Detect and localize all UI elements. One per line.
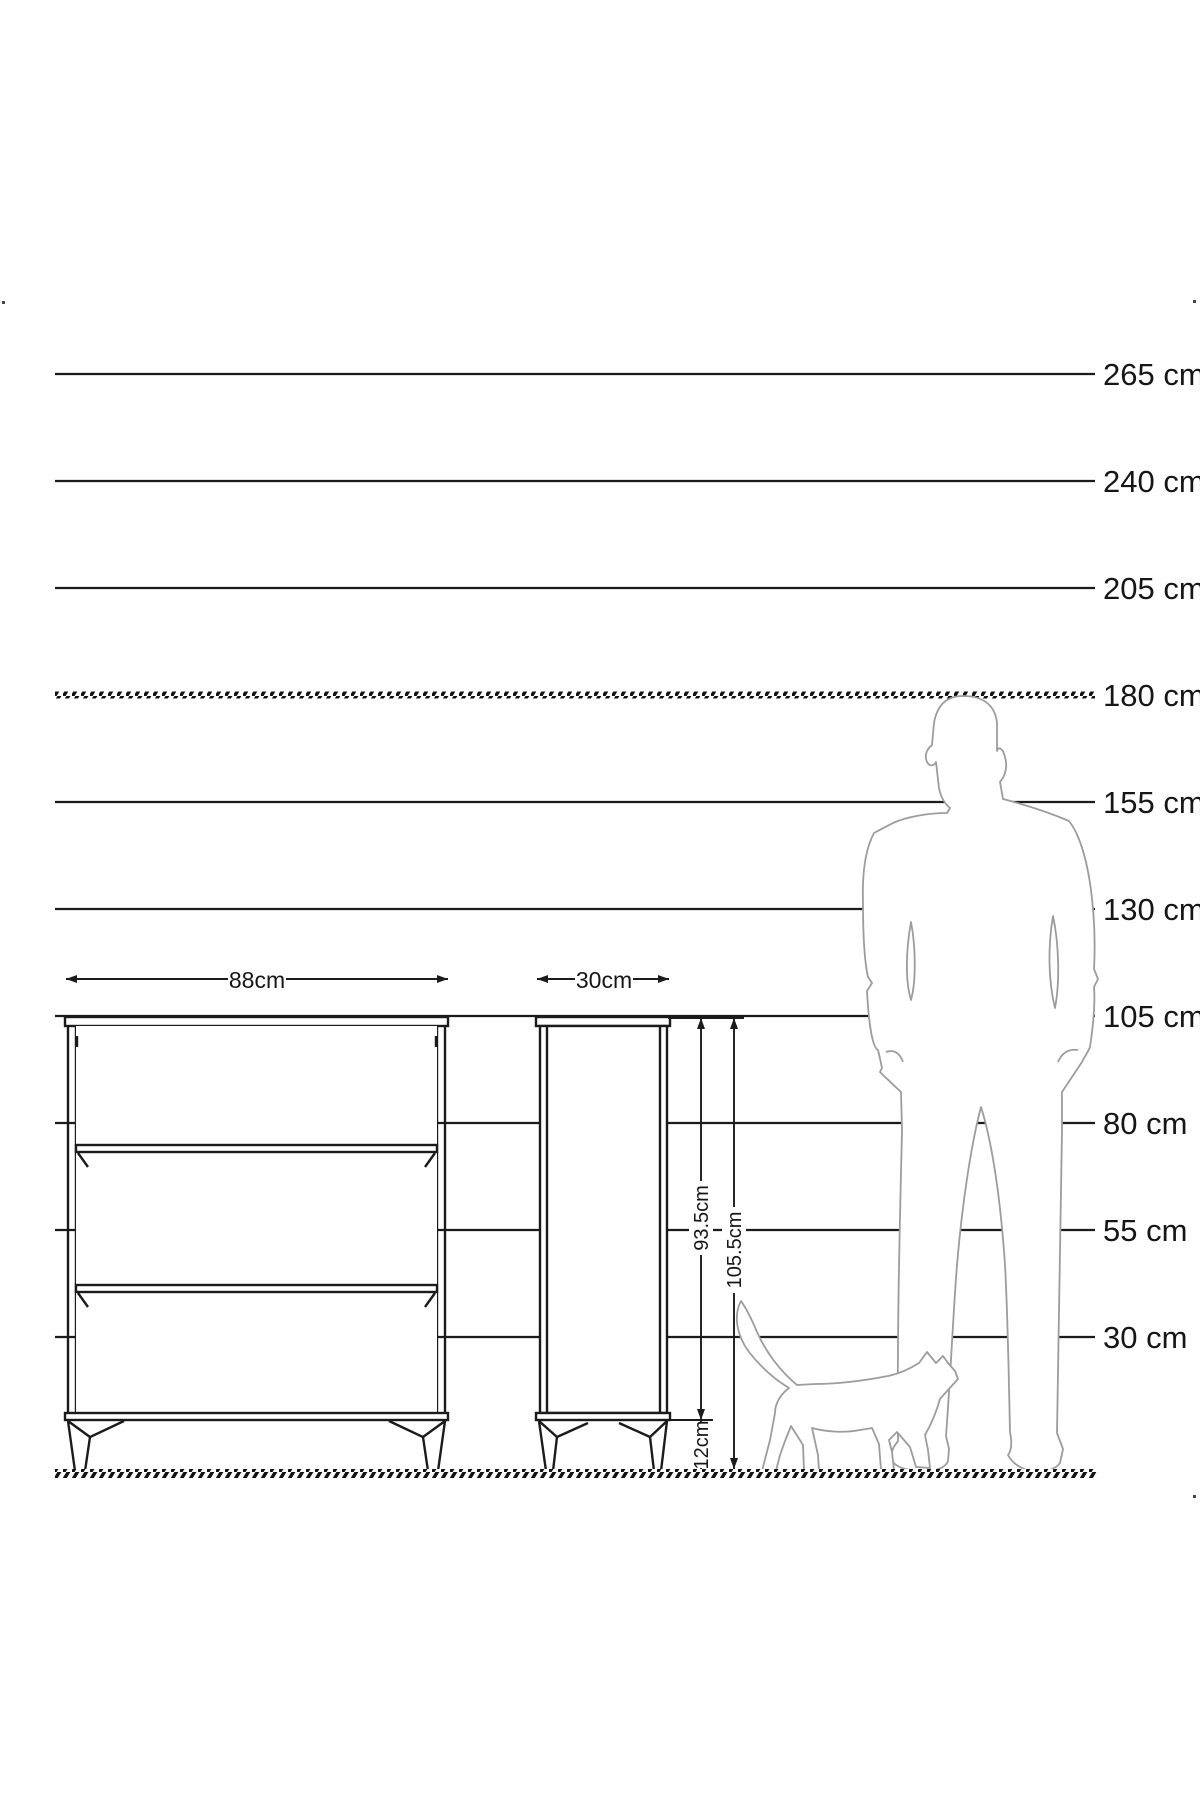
scale-label: 55 cm: [1103, 1213, 1187, 1248]
scale-line-hatched: [55, 692, 1095, 699]
dresser-side-view: [536, 1017, 670, 1471]
scale-label: 80 cm: [1103, 1106, 1187, 1141]
front-bottom-panel: [65, 1413, 448, 1420]
side-depth-label: 30cm: [576, 967, 632, 993]
body-height-label: 93.5cm: [691, 1185, 713, 1251]
side-bottom-panel: [536, 1413, 670, 1420]
scale-label: 265 cm: [1103, 357, 1200, 392]
leg-height-label: 12cm: [691, 1421, 713, 1470]
front-shelf-1: [76, 1145, 437, 1152]
total-height-label-group: 105.5cm: [722, 1207, 746, 1293]
leg-height-label-group: 12cm: [689, 1421, 713, 1470]
dresser-front-view: [65, 1017, 448, 1471]
scale-label: 205 cm: [1103, 571, 1200, 606]
ground-line: [55, 1469, 1097, 1478]
scale-label: 180 cm: [1103, 678, 1200, 713]
furniture-dimension-diagram: 265 cm240 cm205 cm180 cm155 cm130 cm105 …: [0, 0, 1200, 1800]
speck: [1193, 1495, 1196, 1498]
side-top-panel: [536, 1017, 670, 1026]
scale-label: 105 cm: [1103, 999, 1200, 1034]
front-shelf-2: [76, 1285, 437, 1292]
body-height-label-group: 93.5cm: [689, 1181, 713, 1255]
total-height-label: 105.5cm: [724, 1212, 746, 1289]
speck: [2, 301, 5, 304]
front-top-panel: [65, 1017, 448, 1026]
scale-label: 30 cm: [1103, 1320, 1187, 1355]
front-carcass-interior: [76, 1026, 437, 1413]
front-width-label: 88cm: [229, 967, 285, 993]
scale-label: 240 cm: [1103, 464, 1200, 499]
side-body: [540, 1026, 667, 1413]
speck: [1193, 300, 1196, 303]
scale-label: 155 cm: [1103, 785, 1200, 820]
scale-label: 130 cm: [1103, 892, 1200, 927]
